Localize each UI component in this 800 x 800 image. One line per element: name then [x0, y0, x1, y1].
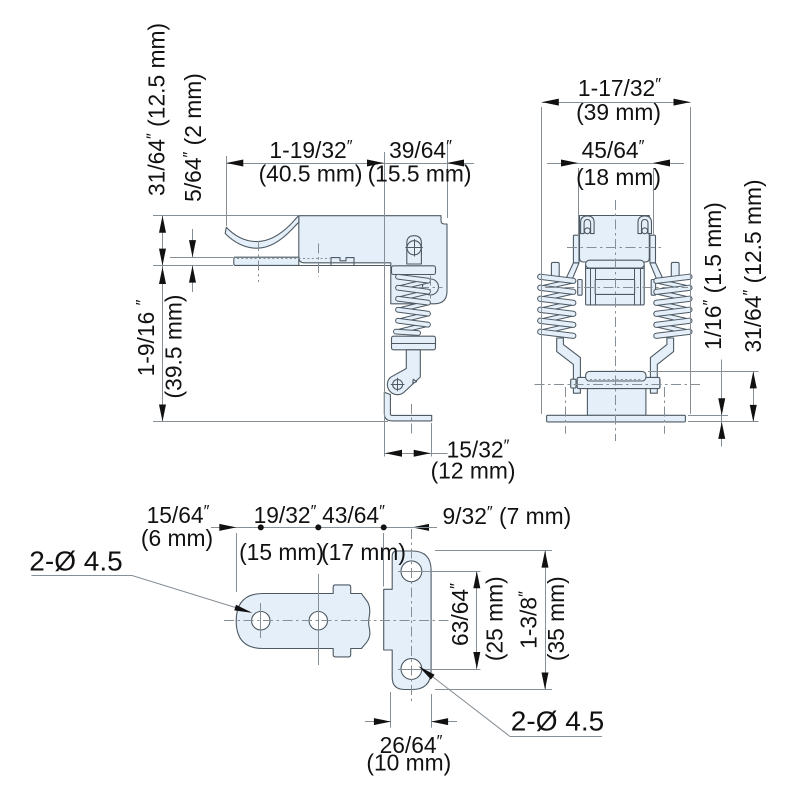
svg-text:1-17/32″: 1-17/32″: [578, 75, 661, 101]
svg-text:1-9/16 ″: 1-9/16 ″: [133, 299, 159, 376]
svg-text:2-Ø 4.5: 2-Ø 4.5: [29, 546, 122, 577]
svg-text:1/16″ (1.5 mm): 1/16″ (1.5 mm): [700, 202, 726, 350]
svg-text:(15 mm): (15 mm): [239, 539, 324, 565]
svg-text:2-Ø 4.5: 2-Ø 4.5: [511, 706, 604, 737]
svg-text:(40.5 mm): (40.5 mm): [259, 161, 363, 187]
svg-text:1-3/8″: 1-3/8″: [516, 591, 542, 649]
svg-text:43/64″: 43/64″: [322, 502, 385, 528]
svg-text:(39.5 mm): (39.5 mm): [161, 295, 187, 399]
svg-text:(6 mm): (6 mm): [141, 525, 213, 551]
svg-text:45/64″: 45/64″: [582, 137, 645, 163]
svg-text:63/64″: 63/64″: [447, 583, 473, 646]
svg-text:31/64″ (12.5 mm): 31/64″ (12.5 mm): [143, 23, 169, 196]
svg-text:19/32″: 19/32″: [254, 502, 317, 528]
svg-text:(17 mm): (17 mm): [321, 539, 406, 565]
svg-text:(25 mm): (25 mm): [481, 576, 507, 661]
svg-text:(15.5 mm): (15.5 mm): [368, 161, 472, 187]
svg-text:1-19/32″: 1-19/32″: [269, 137, 352, 163]
svg-text:(18 mm): (18 mm): [576, 164, 661, 190]
svg-text:(35 mm): (35 mm): [543, 576, 569, 661]
svg-text:(10 mm): (10 mm): [366, 750, 451, 776]
svg-text:(12 mm): (12 mm): [431, 458, 516, 484]
svg-text:31/64″ (12.5 mm): 31/64″ (12.5 mm): [740, 179, 766, 352]
svg-text:5/64″ (2 mm): 5/64″ (2 mm): [180, 73, 206, 202]
svg-text:(39 mm): (39 mm): [576, 99, 661, 125]
svg-text:9/32″ (7 mm): 9/32″ (7 mm): [443, 503, 572, 529]
svg-text:39/64″: 39/64″: [389, 137, 452, 163]
